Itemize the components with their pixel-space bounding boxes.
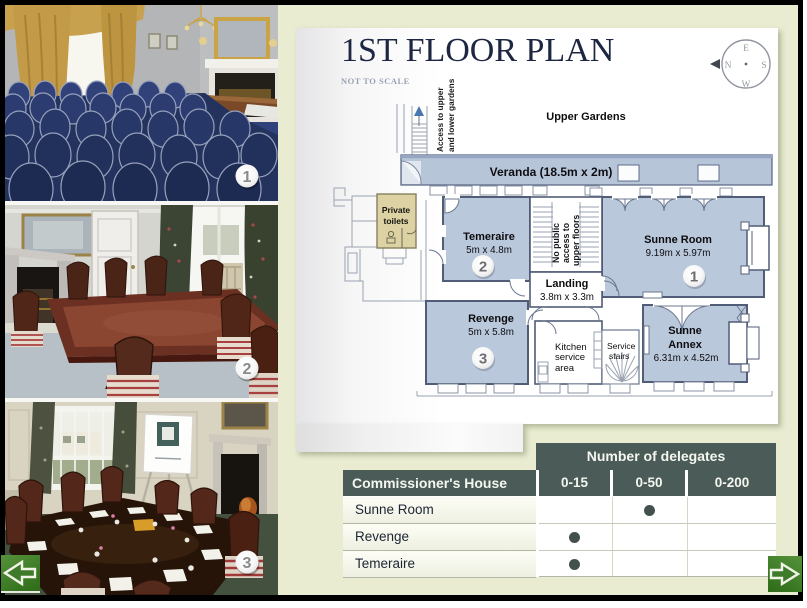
svg-text:service: service xyxy=(555,352,585,363)
svg-text:N: N xyxy=(725,61,732,71)
svg-text:1: 1 xyxy=(690,269,698,286)
svg-text:Private: Private xyxy=(382,205,411,215)
svg-text:No public: No public xyxy=(551,223,561,263)
svg-text:Service: Service xyxy=(607,341,636,351)
svg-text:6.31m x 4.52m: 6.31m x 4.52m xyxy=(654,353,719,364)
svg-text:upper floors: upper floors xyxy=(571,215,581,266)
svg-text:area: area xyxy=(555,363,575,374)
svg-text:S: S xyxy=(761,61,766,71)
svg-text:access to: access to xyxy=(561,222,571,263)
svg-text:Revenge: Revenge xyxy=(468,313,514,325)
svg-text:3.8m x 3.3m: 3.8m x 3.3m xyxy=(540,292,594,303)
svg-text:2: 2 xyxy=(479,259,487,276)
svg-text:toilets: toilets xyxy=(383,216,408,226)
svg-text:2: 2 xyxy=(243,361,252,378)
svg-text:Annex: Annex xyxy=(668,339,703,351)
svg-text:Sunne: Sunne xyxy=(668,325,702,337)
svg-text:9.19m x 5.97m: 9.19m x 5.97m xyxy=(646,248,711,259)
svg-text:and lower gardens: and lower gardens xyxy=(446,78,456,152)
svg-text:Veranda (18.5m x 2m): Veranda (18.5m x 2m) xyxy=(490,165,613,179)
svg-text:Landing: Landing xyxy=(546,278,589,290)
svg-text:Temeraire: Temeraire xyxy=(463,231,515,243)
svg-text:Sunne Room: Sunne Room xyxy=(644,234,712,246)
svg-text:Access to upper: Access to upper xyxy=(435,87,445,152)
svg-text:W: W xyxy=(742,80,751,90)
svg-text:5m x 5.8m: 5m x 5.8m xyxy=(468,327,514,338)
svg-text:Upper Gardens: Upper Gardens xyxy=(546,111,625,123)
svg-text:3: 3 xyxy=(243,555,252,572)
svg-text:5m x 4.8m: 5m x 4.8m xyxy=(466,245,512,256)
svg-text:1: 1 xyxy=(243,169,252,186)
svg-text:3: 3 xyxy=(479,351,487,368)
svg-text:E: E xyxy=(743,44,749,54)
svg-text:stairs: stairs xyxy=(609,351,629,361)
